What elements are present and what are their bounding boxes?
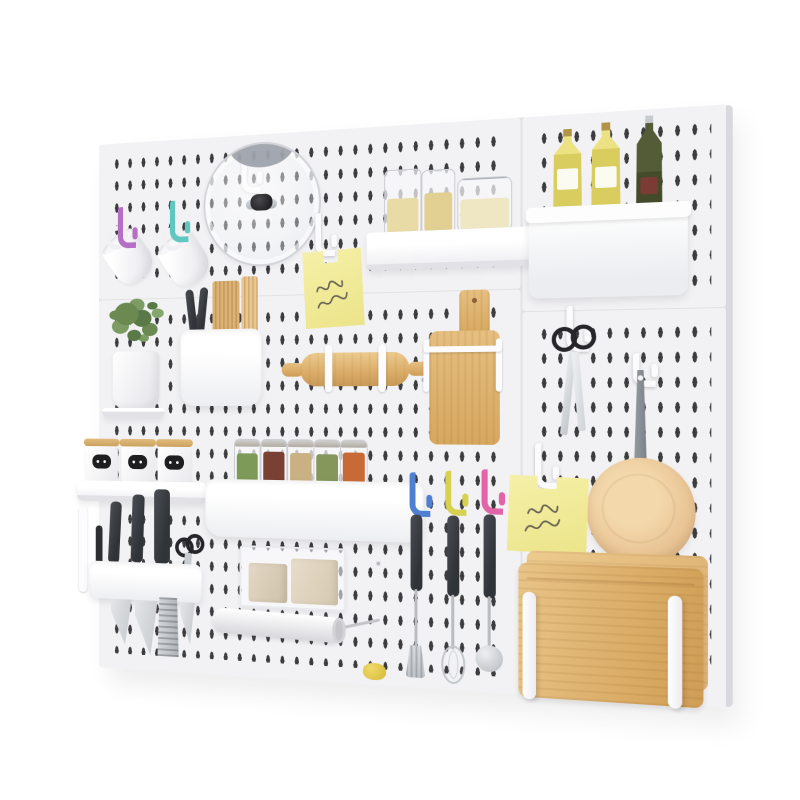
screw [376, 562, 380, 566]
wire-strap [423, 345, 502, 352]
plant-pot [113, 351, 160, 410]
rolling-pin [300, 352, 409, 387]
knife-handle [154, 489, 170, 563]
utensil-shaft [488, 596, 491, 647]
canister [121, 445, 154, 483]
yellow-utensil [363, 662, 386, 680]
utensil-shaft [451, 595, 454, 650]
purple-hook [118, 206, 136, 248]
pasta-jar [457, 176, 512, 234]
white-hook [535, 443, 557, 489]
utensil-handle [411, 515, 423, 592]
teal-hook [170, 200, 189, 243]
storage-bin [529, 205, 688, 299]
kitchen-scissors [550, 324, 599, 439]
pegboard [99, 104, 726, 707]
yellow-hook [445, 471, 466, 516]
utensil-shaft [414, 589, 417, 647]
holder-peg [668, 595, 682, 709]
holder-peg [523, 592, 536, 700]
white-hook [633, 353, 656, 387]
product-photo [0, 0, 800, 800]
pink-hook [482, 469, 503, 514]
knife-rack [89, 560, 202, 603]
paper-bag [249, 563, 288, 603]
clear-bin [240, 545, 346, 612]
white-hook [315, 212, 335, 256]
wire-holder [325, 345, 333, 392]
whisk [441, 645, 465, 685]
spice-tray [205, 479, 423, 543]
canister [86, 445, 118, 483]
chopsticks [212, 281, 239, 336]
wooden-utensils [241, 276, 257, 334]
lid-knob-icon [250, 193, 272, 211]
pasta-jar [421, 168, 455, 234]
blue-hook [410, 472, 431, 517]
knife-handle [131, 494, 145, 563]
shelf [367, 226, 535, 271]
pasta-jar [384, 168, 421, 236]
rack-rail [79, 506, 87, 592]
utensil-holder [180, 328, 261, 406]
wire-holder [378, 344, 386, 392]
utensil-handle [484, 514, 496, 598]
paper-bag [291, 558, 338, 605]
grater [158, 597, 179, 657]
canister [158, 446, 191, 484]
utensil-handle [447, 515, 459, 597]
plant-ledge [103, 408, 165, 418]
peeler [96, 525, 103, 564]
